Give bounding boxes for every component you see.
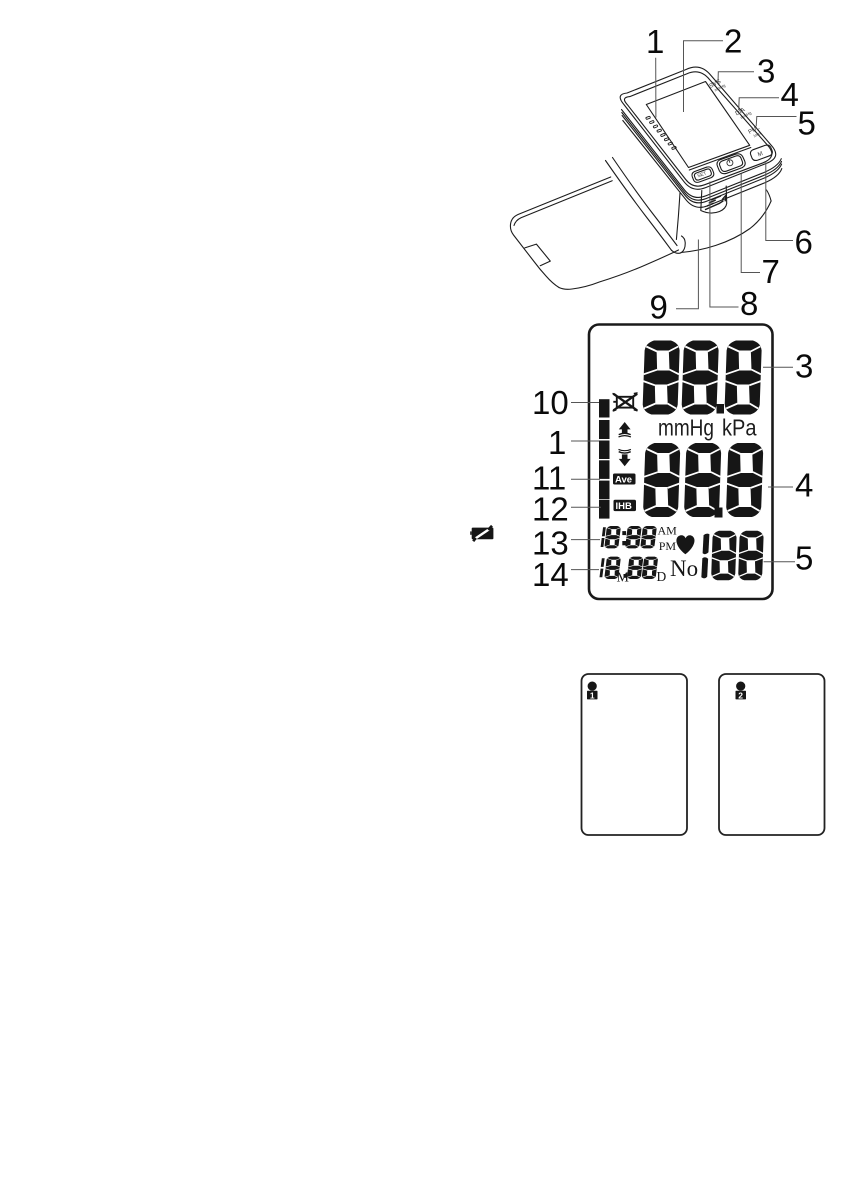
svg-text:Ave: Ave xyxy=(615,475,632,486)
svg-text:9: 9 xyxy=(650,289,668,326)
svg-text:No: No xyxy=(670,556,698,581)
svg-text:1: 1 xyxy=(590,690,595,700)
svg-text:AM: AM xyxy=(658,524,678,538)
svg-text:2: 2 xyxy=(738,690,743,700)
svg-text:M: M xyxy=(617,570,630,585)
svg-text:M: M xyxy=(757,151,764,158)
svg-text:mmHg: mmHg xyxy=(658,415,714,441)
svg-text:10: 10 xyxy=(532,384,569,421)
svg-text:PM: PM xyxy=(659,539,677,553)
svg-text:3: 3 xyxy=(795,348,813,385)
svg-text:6: 6 xyxy=(795,224,813,261)
svg-text:D: D xyxy=(657,569,667,584)
svg-text:8: 8 xyxy=(740,285,758,322)
svg-text:4: 4 xyxy=(795,467,813,504)
svg-text:IHB: IHB xyxy=(616,501,633,512)
svg-text:5: 5 xyxy=(798,104,816,141)
svg-text:5: 5 xyxy=(795,540,813,577)
svg-text:2: 2 xyxy=(724,23,742,60)
svg-text:12: 12 xyxy=(532,491,569,528)
svg-text:1: 1 xyxy=(548,424,566,461)
svg-text:7: 7 xyxy=(762,253,780,290)
svg-text:14: 14 xyxy=(532,556,569,593)
svg-text:4: 4 xyxy=(781,76,799,113)
svg-text:3: 3 xyxy=(757,53,775,90)
svg-text:kPa: kPa xyxy=(722,415,757,441)
svg-text:1: 1 xyxy=(646,23,664,60)
